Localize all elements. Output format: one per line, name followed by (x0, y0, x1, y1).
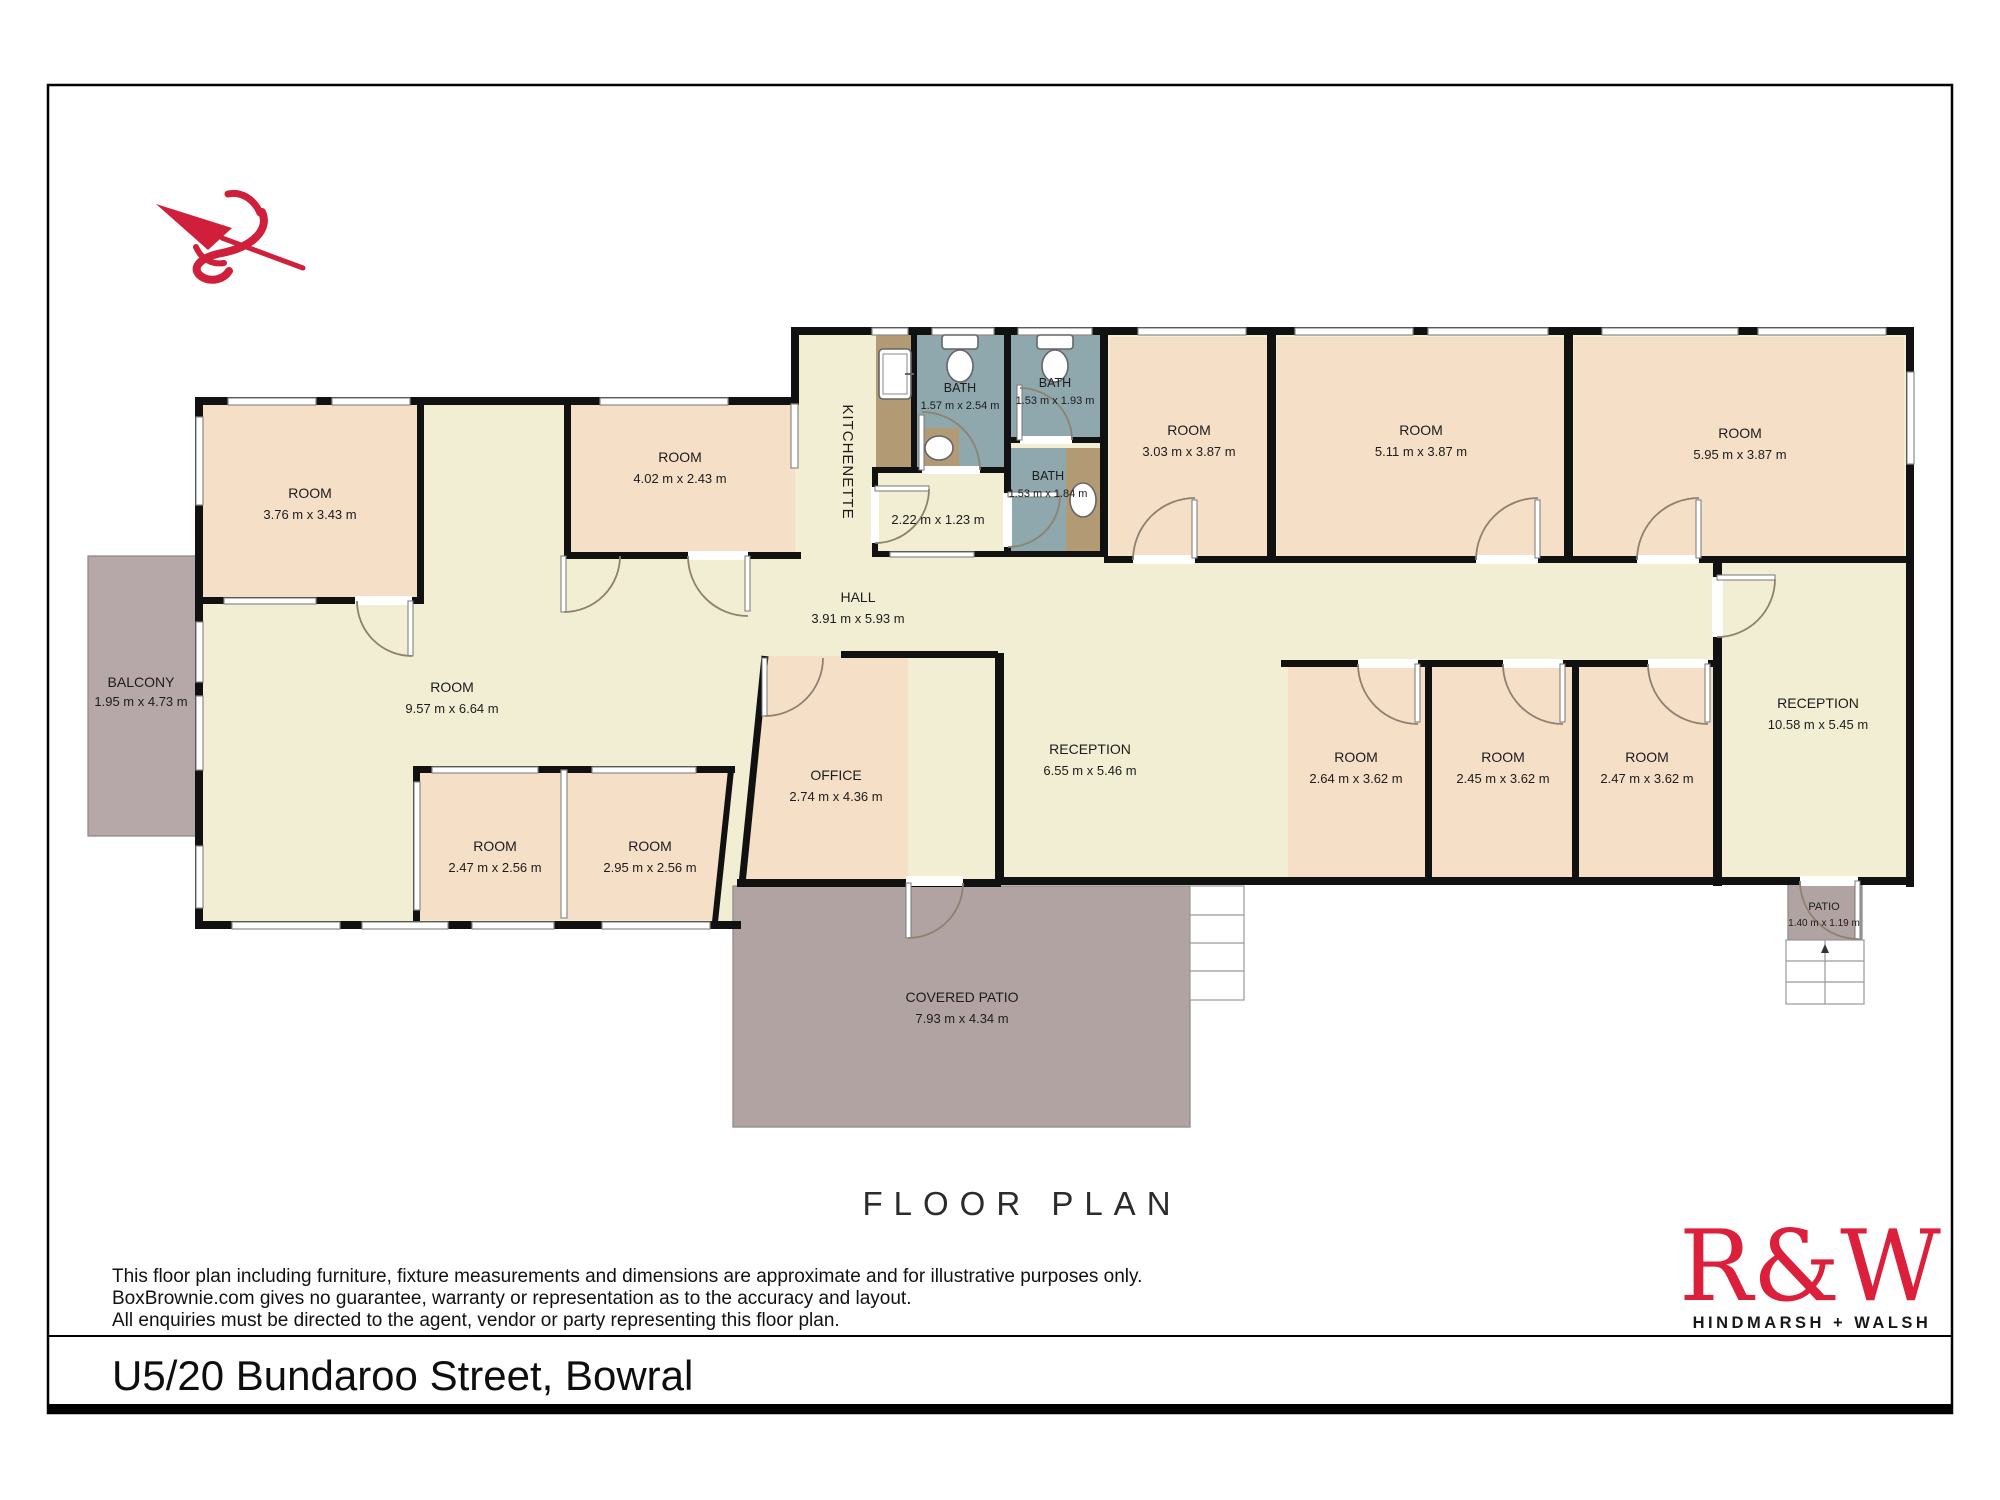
disclaimer-line: BoxBrownie.com gives no guarantee, warra… (112, 1288, 912, 1309)
patio-label: PATIO (1808, 901, 1840, 913)
stairs (1190, 886, 1864, 1004)
office-label: OFFICE (810, 767, 861, 783)
page-title: FLOOR PLAN (862, 1185, 1181, 1222)
patio-dims: 1.40 m x 1.19 m (1788, 918, 1860, 929)
reception-dims: 6.55 m x 5.46 m (1043, 763, 1136, 778)
covered-patio-label: COVERED PATIO (905, 989, 1018, 1005)
bath-label: BATH (1039, 376, 1071, 390)
room-label: ROOM (430, 679, 474, 695)
room-dims: 9.57 m x 6.64 m (405, 701, 498, 716)
hall-label: HALL (840, 589, 875, 605)
bath-dims: 1.53 m x 1.84 m (1009, 488, 1088, 500)
covered-patio-dims: 7.93 m x 4.34 m (915, 1011, 1008, 1026)
agency-logo: R&W HINDMARSH + WALSH (1679, 1210, 1941, 1332)
room-label: ROOM (1334, 749, 1378, 765)
reception-label: RECEPTION (1777, 695, 1859, 711)
reception-label: RECEPTION (1049, 741, 1131, 757)
bath-dims: 1.57 m x 2.54 m (921, 400, 1000, 412)
room-label: ROOM (473, 838, 517, 854)
room-label: ROOM (1481, 749, 1525, 765)
room-label: ROOM (1718, 425, 1762, 441)
logo-brand: R&W (1679, 1210, 1941, 1324)
bath-label: BATH (1032, 469, 1064, 483)
balcony-label: BALCONY (108, 674, 176, 690)
floor-plan-canvas: BALCONY 1.95 m x 4.73 m ROOM 3.76 m x 3.… (0, 0, 2000, 1500)
kitchenette-label: KITCHENETTE (839, 404, 856, 519)
room-dims: 2.47 m x 3.62 m (1600, 771, 1693, 786)
room-dims: 2.45 m x 3.62 m (1456, 771, 1549, 786)
floor-plan-page: BALCONY 1.95 m x 4.73 m ROOM 3.76 m x 3.… (0, 0, 2000, 1500)
room-label: ROOM (658, 449, 702, 465)
room-dims: 5.11 m x 3.87 m (1375, 444, 1467, 459)
disclaimer-line: All enquiries must be directed to the ag… (112, 1310, 840, 1331)
bath-dims: 1.53 m x 1.93 m (1016, 395, 1095, 407)
disclaimer-line: This floor plan including furniture, fix… (112, 1266, 1142, 1287)
north-arrow-icon (156, 193, 303, 279)
covered-patio-area (733, 886, 1190, 1127)
room-label: ROOM (628, 838, 672, 854)
room-dims: 4.02 m x 2.43 m (633, 471, 726, 486)
hall-dims: 3.91 m x 5.93 m (811, 611, 904, 626)
logo-subtitle: HINDMARSH + WALSH (1693, 1314, 1932, 1332)
room-dims: 2.64 m x 3.62 m (1309, 771, 1402, 786)
sink-icon (879, 349, 914, 399)
basin-icon (925, 436, 953, 460)
disclaimer: This floor plan including furniture, fix… (112, 1266, 1142, 1331)
property-address: U5/20 Bundaroo Street, Bowral (112, 1352, 693, 1399)
room-label: ROOM (1625, 749, 1669, 765)
bottom-bar (48, 1404, 1952, 1413)
room-dims: 3.76 m x 3.43 m (263, 507, 356, 522)
reception-dims: 10.58 m x 5.45 m (1768, 717, 1868, 732)
room-label: ROOM (1167, 422, 1211, 438)
small-room-dims: 2.22 m x 1.23 m (891, 512, 984, 527)
room-dims: 3.03 m x 3.87 m (1142, 444, 1235, 459)
balcony-dims: 1.95 m x 4.73 m (94, 694, 187, 709)
bath-label: BATH (944, 381, 976, 395)
room-dims: 5.95 m x 3.87 m (1693, 447, 1786, 462)
room-dims: 2.47 m x 2.56 m (448, 860, 541, 875)
room-label: ROOM (288, 485, 332, 501)
office-dims: 2.74 m x 4.36 m (789, 789, 882, 804)
room-dims: 2.95 m x 2.56 m (603, 860, 696, 875)
room-label: ROOM (1399, 422, 1443, 438)
